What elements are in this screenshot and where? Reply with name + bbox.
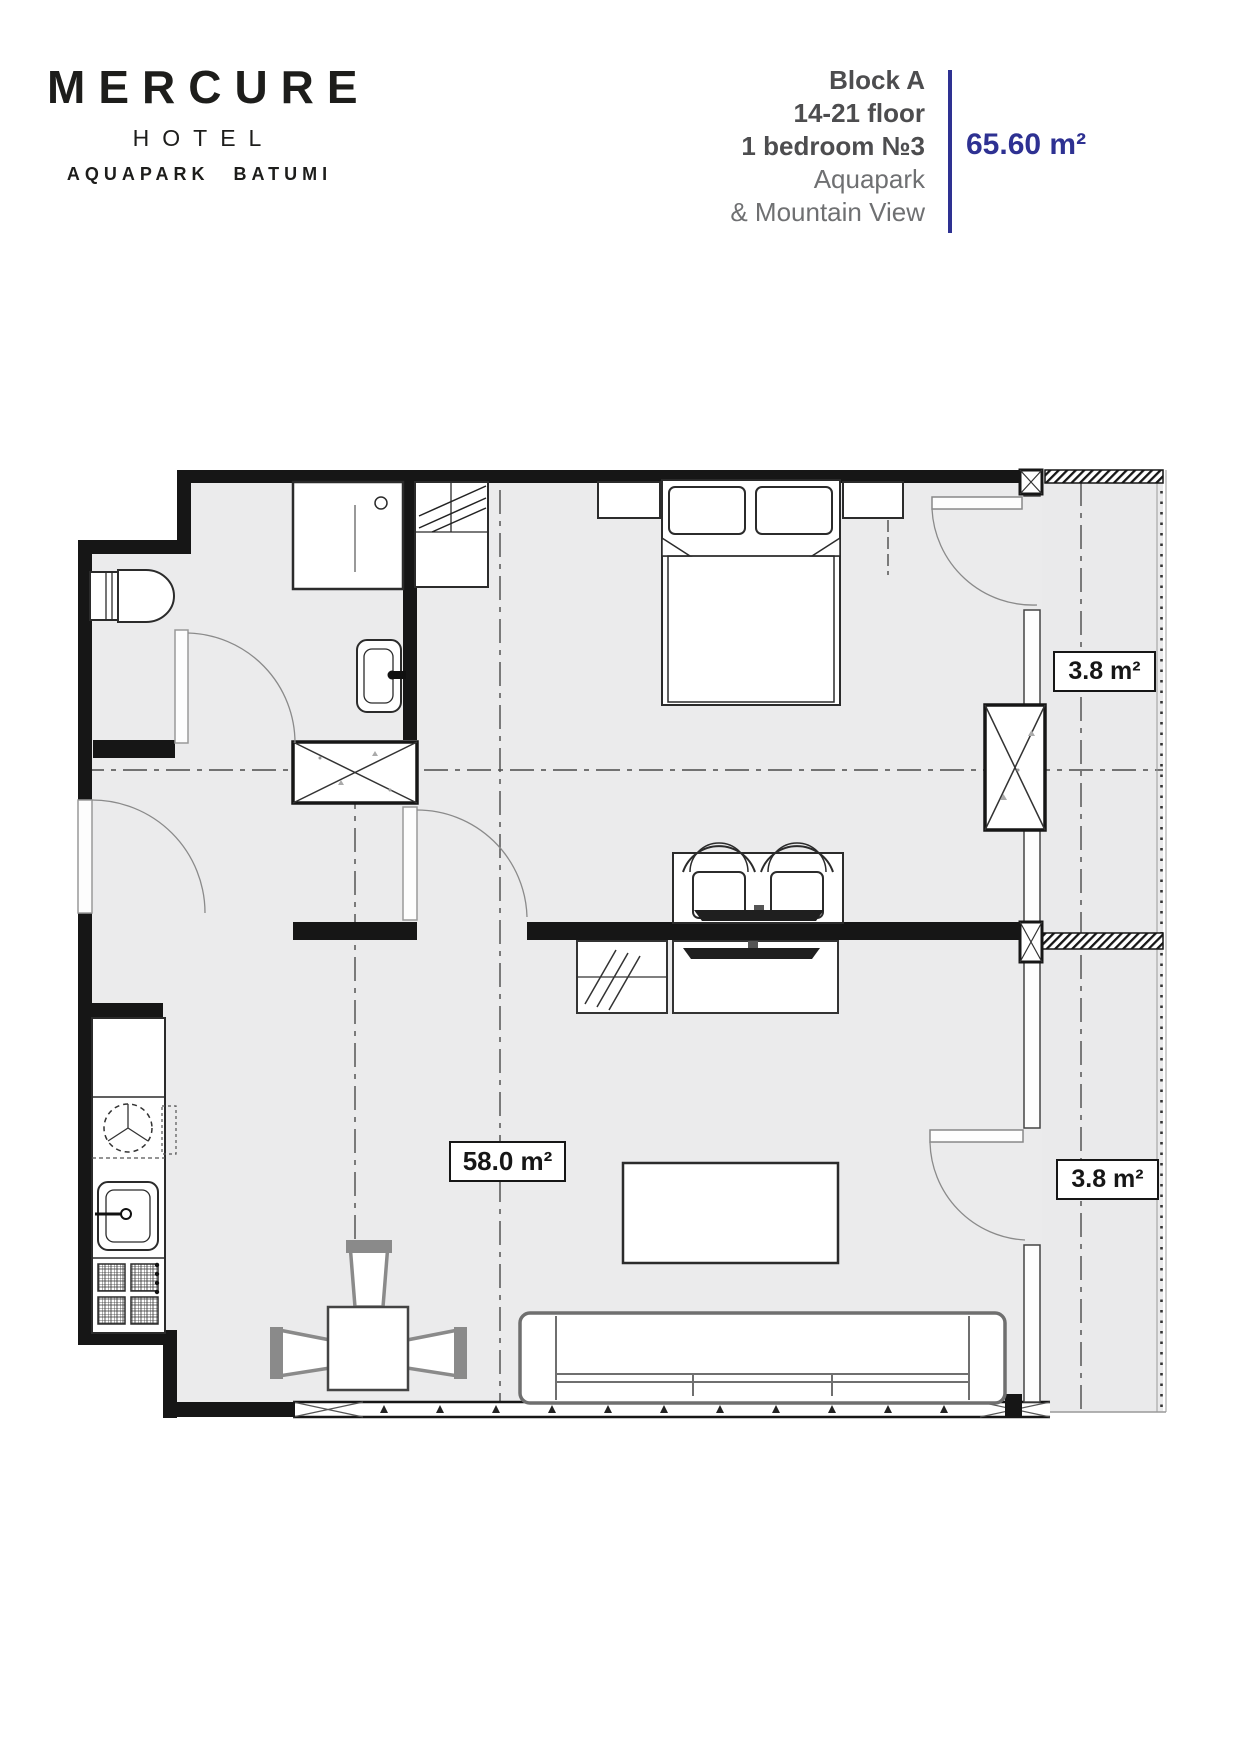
unit-type: 1 bedroom №3 <box>730 130 925 163</box>
unit-info: Block A 14-21 floor 1 bedroom №3 Aquapar… <box>730 64 925 229</box>
structural-column <box>985 705 1045 830</box>
balcony-top-area-label: 3.8 m² <box>1053 651 1156 692</box>
unit-view-line2: & Mountain View <box>730 196 925 229</box>
hotel-logo: MERCURE HOTEL AQUAPARK BATUMI <box>47 62 347 185</box>
kitchen <box>92 1018 176 1333</box>
brand-name: MERCURE <box>47 62 360 113</box>
brand-location: AQUAPARK BATUMI <box>47 164 352 185</box>
unit-floor-range: 14-21 floor <box>730 97 925 130</box>
unit-view-line1: Aquapark <box>730 163 925 196</box>
brand-word: HOTEL <box>47 125 360 152</box>
dining-table <box>328 1307 408 1390</box>
total-area-value: 65.60 m² <box>966 128 1086 162</box>
ventilation-shaft <box>293 742 417 803</box>
washbasin <box>357 640 406 712</box>
sofa <box>520 1313 1005 1403</box>
unit-block-label: Block A <box>730 64 925 97</box>
kitchen-sink <box>95 1182 158 1250</box>
bed <box>662 480 840 705</box>
wardrobe <box>415 482 488 587</box>
shower <box>293 482 403 589</box>
living-area-label: 58.0 m² <box>449 1141 566 1182</box>
desk-and-chairs <box>673 843 843 923</box>
tv-unit <box>577 941 838 1013</box>
toilet <box>90 570 174 622</box>
balcony-bottom-area-label: 3.8 m² <box>1056 1159 1159 1200</box>
coffee-table <box>623 1163 838 1263</box>
floorplan-page: MERCURE HOTEL AQUAPARK BATUMI Block A 14… <box>0 0 1240 1755</box>
floor-plan <box>0 0 1240 1755</box>
header-divider <box>948 70 952 233</box>
